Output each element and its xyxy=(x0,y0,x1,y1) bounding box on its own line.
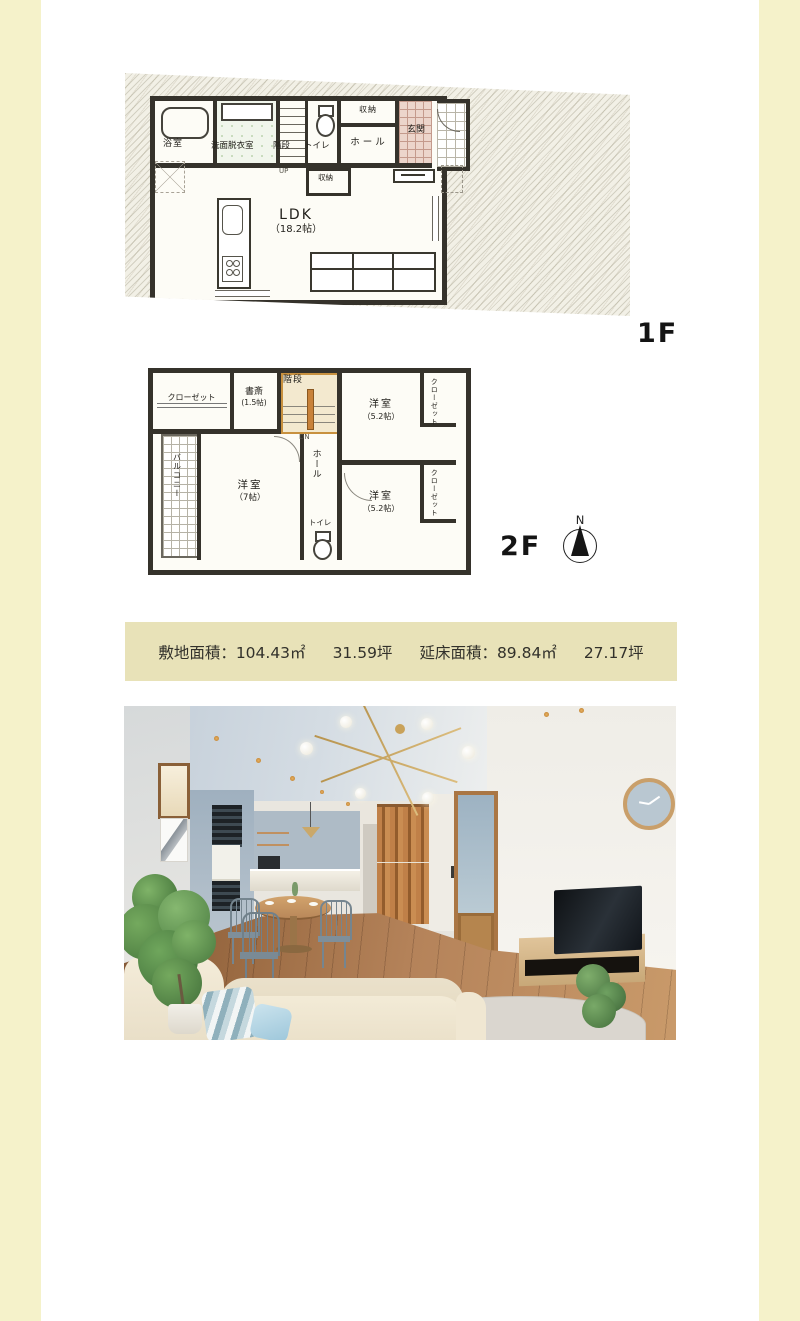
closet-tl-label: クローゼット xyxy=(153,393,230,402)
study-label: 書斎 xyxy=(227,387,281,398)
slat-shelf xyxy=(212,805,242,847)
site-area-tsubo: 31.59坪 xyxy=(333,641,393,663)
hall-doorway xyxy=(363,824,377,921)
floorplan-1f-lot: 収納 xyxy=(125,73,630,316)
door-swing-arc xyxy=(274,436,300,462)
door-swing-arc xyxy=(437,109,460,132)
burner-icon xyxy=(233,269,240,276)
sofa-seam xyxy=(352,270,354,290)
interior-photo xyxy=(124,706,676,1040)
area-banner: 敷地面積：104.43㎡ 31.59坪 延床面積：89.84㎡ 27.17坪 xyxy=(125,622,677,681)
chandelier-bulb xyxy=(462,746,475,759)
chair-leg xyxy=(232,938,234,964)
pendant-cord xyxy=(310,802,311,828)
hall-label: ホール xyxy=(343,137,395,148)
chair-leg xyxy=(322,942,324,968)
bedroom-left-label: 洋室 xyxy=(200,479,300,491)
wall xyxy=(395,101,399,163)
entrance-porch xyxy=(437,99,470,171)
stairs-label: 階段 xyxy=(273,141,290,151)
stairs-2f-label: 階段 xyxy=(283,375,303,386)
wall xyxy=(420,519,456,523)
wall xyxy=(341,123,395,127)
floorplan-2f-house: クローゼット 書斎 (1.5帖) 階段 DN ホール トイレ 洋室 （5.2帖）… xyxy=(148,368,471,575)
downlight xyxy=(290,776,295,781)
chandelier-bulb xyxy=(340,716,352,728)
up-label: UP xyxy=(279,167,288,175)
study-size-label: (1.5帖) xyxy=(227,399,281,408)
vanity-sink-icon xyxy=(221,103,273,121)
stairs-1f xyxy=(280,101,305,163)
closet-br-label: クローゼット xyxy=(430,469,438,517)
plate xyxy=(265,901,274,905)
burner-icon xyxy=(233,260,240,267)
plate xyxy=(287,899,296,903)
dining-chair xyxy=(242,912,280,956)
bath-label: 浴室 xyxy=(163,139,183,150)
bedroom-tr-size-label: （5.2帖） xyxy=(331,412,431,421)
wall xyxy=(153,429,281,434)
approach-step xyxy=(441,165,463,193)
plant-small xyxy=(582,994,616,1028)
table-pedestal xyxy=(290,916,297,948)
page: 収納 xyxy=(0,0,800,1321)
clock-hand xyxy=(639,801,649,805)
hanger-rod xyxy=(157,407,227,408)
window xyxy=(215,290,270,297)
stove-icon xyxy=(222,256,243,282)
wall-clock xyxy=(623,778,675,830)
storage-top-label: 収納 xyxy=(341,105,395,114)
chandelier-bulb xyxy=(355,788,366,799)
hall-2f-label: ホール xyxy=(310,449,321,479)
downlight xyxy=(320,790,324,794)
wall xyxy=(276,101,280,163)
door-rail-line xyxy=(377,862,429,863)
storage-unit xyxy=(212,845,240,881)
tv-line xyxy=(401,174,425,176)
bathtub-icon xyxy=(161,107,209,139)
chandelier-bulb xyxy=(422,792,434,804)
stair-newel xyxy=(307,389,314,430)
table-base xyxy=(276,945,312,953)
floorplan-1f-house: 収納 xyxy=(150,96,447,305)
wood-sliding-doors xyxy=(377,804,429,924)
downlight xyxy=(214,736,219,741)
plate xyxy=(309,902,318,906)
kitchen-counter xyxy=(250,869,364,891)
dn-label: DN xyxy=(299,433,310,441)
bedroom-br-size-label: （5.2帖） xyxy=(331,504,431,513)
downlight xyxy=(544,712,549,717)
floor-area-tsubo: 27.17坪 xyxy=(584,641,644,663)
chandelier-bulb xyxy=(421,718,433,730)
floor-hatch-box xyxy=(155,161,185,193)
balcony-label: バルコニー xyxy=(172,453,181,498)
burner-icon xyxy=(226,269,233,276)
downlight xyxy=(579,708,584,713)
washroom-label: 洗面脱衣室 xyxy=(211,141,254,151)
floor-label-1f: 1F xyxy=(637,318,678,349)
tv-board-icon xyxy=(393,169,435,183)
bedroom-br-label: 洋室 xyxy=(331,491,431,503)
wall xyxy=(305,101,308,163)
site-area-value: 敷地面積：104.43㎡ xyxy=(158,641,305,663)
ldk-size-label: （18.2帖） xyxy=(246,224,346,236)
compass-arrow xyxy=(571,525,589,556)
toilet-2f-label: トイレ xyxy=(303,519,337,528)
toilet-bowl-icon xyxy=(313,539,332,560)
chandelier-bulb xyxy=(300,742,313,755)
microwave xyxy=(258,856,280,869)
clock-hand xyxy=(648,796,660,805)
table-vase xyxy=(292,882,298,896)
wall-between-doors xyxy=(429,794,454,931)
bedroom-left-size-label: （7帖） xyxy=(200,493,300,503)
wall xyxy=(213,101,217,163)
window xyxy=(158,763,190,819)
closet-tr-label: クローゼット xyxy=(430,378,438,426)
compass-north-icon: N xyxy=(560,514,600,570)
tv-screen xyxy=(554,886,642,955)
dining-chair-seat xyxy=(240,952,278,959)
downlight xyxy=(256,758,261,763)
compass-circle xyxy=(563,529,597,563)
floor-area-value: 延床面積：89.84㎡ xyxy=(419,641,556,663)
ldk-label: LDK xyxy=(246,207,346,224)
hanger-rod xyxy=(157,403,227,404)
bedroom-tr-label: 洋室 xyxy=(331,399,431,411)
glass-door xyxy=(454,791,498,959)
pendant-light xyxy=(302,827,320,838)
kitchen-sink-icon xyxy=(222,205,243,235)
kitchen-shelf xyxy=(257,832,289,834)
toilet-label: トイレ xyxy=(304,141,330,151)
floor-label-2f: 2F xyxy=(500,531,541,562)
toilet-bowl-icon xyxy=(316,114,335,137)
downlight xyxy=(346,802,350,806)
window xyxy=(432,196,439,241)
storage-mid-label: 収納 xyxy=(309,174,342,183)
plant-large xyxy=(152,958,202,1008)
chandelier-canopy xyxy=(395,724,405,734)
sofa-armrest xyxy=(456,992,486,1040)
sofa-seam xyxy=(392,270,394,290)
entrance-label: 玄関 xyxy=(401,125,431,136)
right-margin-strip xyxy=(759,0,800,1321)
kitchen-shelf xyxy=(257,844,289,846)
wall xyxy=(155,163,432,168)
wall xyxy=(342,460,456,465)
left-margin-strip xyxy=(0,0,41,1321)
chair-leg xyxy=(344,942,346,968)
wall xyxy=(300,434,304,560)
sofa-seat xyxy=(310,268,436,292)
storage-mid-box: 収納 xyxy=(306,168,351,196)
door-handle xyxy=(451,866,454,878)
plant-pot xyxy=(168,1004,202,1034)
blue-pillow xyxy=(249,1002,293,1040)
dining-chair xyxy=(320,900,352,940)
burner-icon xyxy=(226,260,233,267)
wall-art xyxy=(160,818,188,862)
